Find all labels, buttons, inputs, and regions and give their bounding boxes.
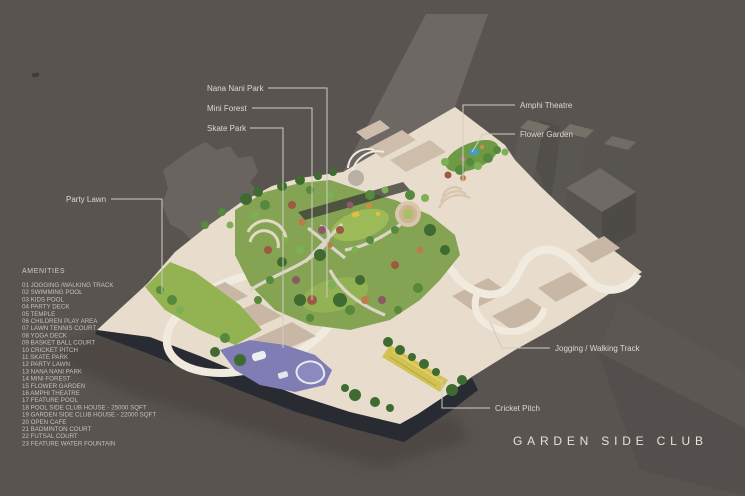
amenity-item: 04 PARTY DECK [22, 304, 70, 311]
amenity-item: 11 SKATE PARK [22, 354, 69, 361]
amenity-item: 08 YOGA DECK [22, 332, 68, 339]
label-skate-park: Skate Park [207, 124, 247, 133]
amenity-item: 22 FUTSAL COURT [22, 433, 78, 440]
amenity-item: 19 GARDEN SIDE CLUB HOUSE - 22000 SQFT [22, 412, 156, 419]
circular-lawn [395, 201, 421, 227]
label-jogging-track: Jogging / Walking Track [555, 344, 641, 353]
amenities-title: AMENITIES [22, 268, 65, 275]
amenity-item: 16 AMPHI THEATRE [22, 390, 80, 397]
amenity-item: 23 FEATURE WATER FOUNTAIN [22, 440, 115, 447]
amenity-item: 12 PARTY LAWN [22, 361, 70, 368]
amenity-item: 09 BASKET BALL COURT [22, 340, 95, 347]
amenity-item: 07 LAWN TENNIS COURT [22, 325, 96, 332]
amenity-item: 14 MINI FOREST [22, 376, 71, 383]
label-nana-nani-park: Nana Nani Park [207, 84, 264, 93]
amenity-item: 05 TEMPLE [22, 311, 55, 318]
amenity-item: 13 NANA NANI PARK [22, 368, 83, 375]
amenity-item: 02 SWIMMING POOL [22, 289, 83, 296]
site-plan-figure: Party Lawn Nana Nani Park Mini Forest Sk… [0, 0, 745, 496]
label-mini-forest: Mini Forest [207, 104, 247, 113]
amenity-item: 03 KIDS POOL [22, 296, 65, 303]
amenity-item: 20 OPEN CAFE [22, 419, 66, 426]
label-cricket-pitch: Cricket Pitch [495, 404, 540, 413]
label-flower-garden: Flower Garden [520, 130, 573, 139]
amenity-item: 17 FEATURE POOL [22, 397, 78, 404]
amenity-item: 15 FLOWER GARDEN [22, 383, 85, 390]
amenity-item: 21 BADMINTON COURT [22, 426, 91, 433]
label-party-lawn: Party Lawn [66, 195, 106, 204]
page-title: GARDEN SIDE CLUB [513, 434, 708, 448]
amenity-item: 18 POOL SIDE CLUB HOUSE - 25000 SQFT [22, 404, 147, 411]
amenity-item: 06 CHILDREN PLAY AREA [22, 318, 98, 325]
label-amphi-theatre: Amphi Theatre [520, 101, 573, 110]
amenity-item: 10 CRICKET PITCH [22, 347, 78, 354]
amenity-item: 01 JOGGING /WALKING TRACK [22, 282, 114, 289]
masterplan-page: Party Lawn Nana Nani Park Mini Forest Sk… [0, 0, 745, 496]
dome-feature [348, 170, 364, 186]
